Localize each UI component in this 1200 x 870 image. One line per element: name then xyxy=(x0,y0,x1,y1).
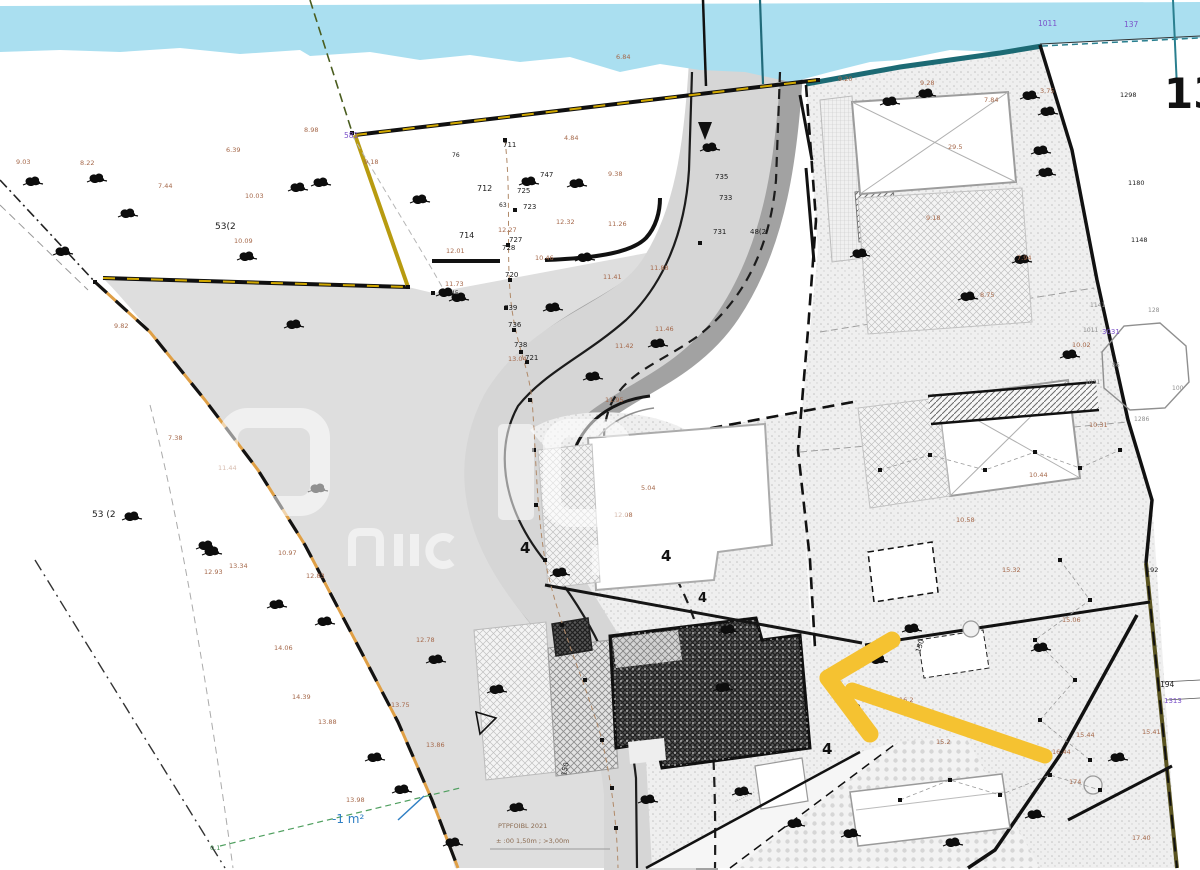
map-label: 137 xyxy=(1124,20,1139,29)
map-label: 11.42 xyxy=(615,342,634,350)
map-label: 13.34 xyxy=(229,562,248,570)
map-label: 6.39 xyxy=(226,146,240,154)
yellow-boundary xyxy=(355,135,408,287)
dark-block-small xyxy=(552,618,592,656)
map-label: 3.75 xyxy=(1040,87,1054,95)
map-label: 11.26 xyxy=(608,220,627,228)
tree-icon xyxy=(87,174,107,183)
map-label: 53 (2 xyxy=(92,510,116,520)
map-label: 1148 xyxy=(1131,236,1148,244)
map-label: 720 xyxy=(505,271,518,279)
paved-yard-northeast xyxy=(858,188,1032,334)
survey-note-line1: PTPFOIBL 2021 xyxy=(498,822,547,830)
survey-point xyxy=(928,453,932,457)
map-label: 13.04 xyxy=(508,355,527,363)
tree-icon xyxy=(311,178,331,187)
map-label: 63 xyxy=(499,202,507,209)
map-label: 1286 xyxy=(1134,416,1149,423)
survey-note-line2: ± :00 1,50m ; >3,00m xyxy=(496,837,569,845)
survey-point xyxy=(1048,773,1052,777)
survey-point xyxy=(1033,450,1037,454)
map-label: 739 xyxy=(504,304,517,312)
map-label: 10.31 xyxy=(1089,421,1108,429)
survey-point xyxy=(698,241,702,245)
nw-boundary xyxy=(0,180,95,282)
survey-point xyxy=(614,826,618,830)
map-label: 728 xyxy=(502,244,515,252)
retaining-wall-2 xyxy=(545,198,660,260)
map-label: 15.2 xyxy=(936,738,950,746)
map-label: 738 xyxy=(514,341,527,349)
paved-column-west xyxy=(474,622,556,780)
map-label: 721 xyxy=(525,354,538,362)
map-label: 29.5 xyxy=(948,143,962,151)
tree-icon xyxy=(288,183,308,192)
survey-point xyxy=(948,778,952,782)
map-label: 4 xyxy=(698,591,707,606)
map-label: 53(2 xyxy=(215,222,236,232)
paved-column-mid xyxy=(548,640,618,776)
map-label: 731 xyxy=(713,228,726,236)
map-label: 15.06 xyxy=(1062,616,1081,624)
tree-icon xyxy=(23,177,43,186)
map-label: 174 xyxy=(1069,778,1081,786)
tree-icon xyxy=(118,209,138,218)
survey-point xyxy=(878,468,882,472)
map-label: 12.93 xyxy=(204,568,223,576)
map-label: 712 xyxy=(477,184,492,193)
map-label: 9.28 xyxy=(920,79,934,87)
survey-point xyxy=(1058,558,1062,562)
highlighted-building xyxy=(610,618,810,768)
map-label: 86 xyxy=(1112,362,1120,369)
map-label: 11.73 xyxy=(445,280,464,288)
map-label: 10.44 xyxy=(1029,471,1048,479)
map-label: 76 xyxy=(452,152,460,159)
map-label: 100 xyxy=(1172,385,1184,392)
survey-point xyxy=(1088,758,1092,762)
tree-icon xyxy=(122,512,142,521)
map-label: 725 xyxy=(517,187,530,195)
survey-point xyxy=(1038,718,1042,722)
survey-point xyxy=(898,798,902,802)
map-label: 1313 xyxy=(1164,697,1182,705)
map-label: 7.84 xyxy=(984,96,998,104)
survey-point xyxy=(1088,598,1092,602)
site-plan-page: 7127147117674772572363727728720739736738… xyxy=(0,0,1200,870)
map-label: 1031 xyxy=(1085,379,1100,386)
map-label: 4.84 xyxy=(564,134,578,142)
map-label: 1141 xyxy=(1090,302,1105,309)
map-label: 3031 xyxy=(1102,328,1120,336)
map-label: -1 m² xyxy=(332,812,364,826)
building-northeast xyxy=(852,92,1016,194)
map-label: 13.75 xyxy=(391,701,410,709)
survey-point xyxy=(519,350,523,354)
survey-point xyxy=(600,738,604,742)
map-label: 45 xyxy=(451,290,459,297)
map-label: 7.94 xyxy=(1017,254,1031,262)
map-label: 9.38 xyxy=(608,170,622,178)
map-label: 711 xyxy=(503,141,516,149)
map-label: 12.01 xyxy=(446,247,465,255)
map-label: 581 xyxy=(344,131,359,140)
survey-point xyxy=(543,558,547,562)
map-label: 9.03 xyxy=(16,158,30,166)
tree-icon xyxy=(237,252,257,261)
survey-point xyxy=(583,678,587,682)
survey-point xyxy=(1078,466,1082,470)
well-circle-2 xyxy=(963,621,979,637)
survey-point xyxy=(983,468,987,472)
nw-boundary-parallel xyxy=(0,205,88,290)
map-label: 194 xyxy=(1160,680,1175,689)
map-label: 13.88 xyxy=(318,718,337,726)
map-label: 723 xyxy=(523,203,536,211)
map-label: 10.02 xyxy=(1072,341,1091,349)
survey-point xyxy=(610,786,614,790)
map-label: 9.20 xyxy=(838,75,852,83)
map-label: 14.39 xyxy=(292,693,311,701)
map-label: 15.44 xyxy=(1076,731,1095,739)
map-label: 10.46 xyxy=(535,254,554,262)
map-label: 10.09 xyxy=(234,237,253,245)
map-label: 13.98 xyxy=(346,796,365,804)
map-label: 4 xyxy=(822,740,832,758)
map-label: 8.75 xyxy=(980,291,994,299)
map-label: 192 xyxy=(1146,566,1158,574)
note-leader-line xyxy=(398,796,424,820)
map-label: 9.18 xyxy=(926,214,940,222)
map-label: 12.83 xyxy=(306,572,325,580)
map-label: 11.41 xyxy=(603,273,622,281)
survey-point xyxy=(534,503,538,507)
map-label: 12.27 xyxy=(498,226,517,234)
tree-icon xyxy=(567,179,587,188)
map-label: 5.04 xyxy=(641,484,655,492)
survey-point xyxy=(431,291,435,295)
map-label: 11.95 xyxy=(605,396,624,404)
map-label: 8.22 xyxy=(80,159,94,167)
map-label: 0.1 xyxy=(210,844,220,852)
map-label: 10.97 xyxy=(278,549,297,557)
parcel-number-large: 13 xyxy=(1164,69,1200,118)
map-label: 15.41 xyxy=(1142,728,1161,736)
survey-point xyxy=(816,78,820,82)
map-label: 7.38 xyxy=(168,434,182,442)
survey-point xyxy=(513,208,517,212)
map-label: 12.32 xyxy=(556,218,575,226)
map-label: 1180 xyxy=(1128,179,1145,187)
map-label: 736 xyxy=(508,321,522,329)
survey-point xyxy=(93,280,97,284)
map-label: 16.44 xyxy=(1052,748,1071,756)
map-label: 13.86 xyxy=(426,741,445,749)
map-label: 747 xyxy=(540,171,553,179)
survey-point xyxy=(528,398,532,402)
survey-point xyxy=(406,285,410,289)
map-label: 8.98 xyxy=(304,126,318,134)
slab-dashed xyxy=(868,542,938,602)
map-label: 11.46 xyxy=(655,325,674,333)
survey-point xyxy=(1033,638,1037,642)
map-label: 12.78 xyxy=(416,636,435,644)
map-label: 7.44 xyxy=(158,182,172,190)
survey-point xyxy=(1073,678,1077,682)
map-label: 1011 xyxy=(1083,327,1098,334)
tree-icon xyxy=(315,617,335,626)
map-label: 9.18 xyxy=(364,158,378,166)
map-label: 6.84 xyxy=(616,53,630,61)
map-label: 4 xyxy=(520,539,530,557)
tree-icon xyxy=(392,785,412,794)
map-label: 11.88 xyxy=(650,264,669,272)
map-label: 735 xyxy=(715,173,728,181)
survey-point xyxy=(1118,448,1122,452)
survey-point xyxy=(560,623,564,627)
map-label: 10.58 xyxy=(956,516,975,524)
map-label: 714 xyxy=(459,231,474,240)
tree-icon xyxy=(365,753,385,762)
map-label: 17.40 xyxy=(1132,834,1151,842)
tree-icon xyxy=(267,600,287,609)
map-label: 727 xyxy=(509,236,522,244)
map-label: 733 xyxy=(719,194,732,202)
survey-point xyxy=(1098,788,1102,792)
map-label: 1298 xyxy=(1120,91,1137,99)
map-label: 48(2 xyxy=(750,228,766,236)
map-label: 15.32 xyxy=(1002,566,1021,574)
map-label: 10.03 xyxy=(245,192,264,200)
map-label: 9.82 xyxy=(114,322,128,330)
map-label: 4 xyxy=(661,547,671,565)
survey-point xyxy=(998,793,1002,797)
sw-boundary xyxy=(35,560,225,868)
tree-icon xyxy=(519,177,539,186)
map-label: 14.06 xyxy=(274,644,293,652)
site-plan-map: 7127147117674772572363727728720739736738… xyxy=(0,0,1200,870)
tree-icon xyxy=(410,195,430,204)
map-label: 1011 xyxy=(1038,19,1057,28)
map-label: 128 xyxy=(1148,307,1160,314)
